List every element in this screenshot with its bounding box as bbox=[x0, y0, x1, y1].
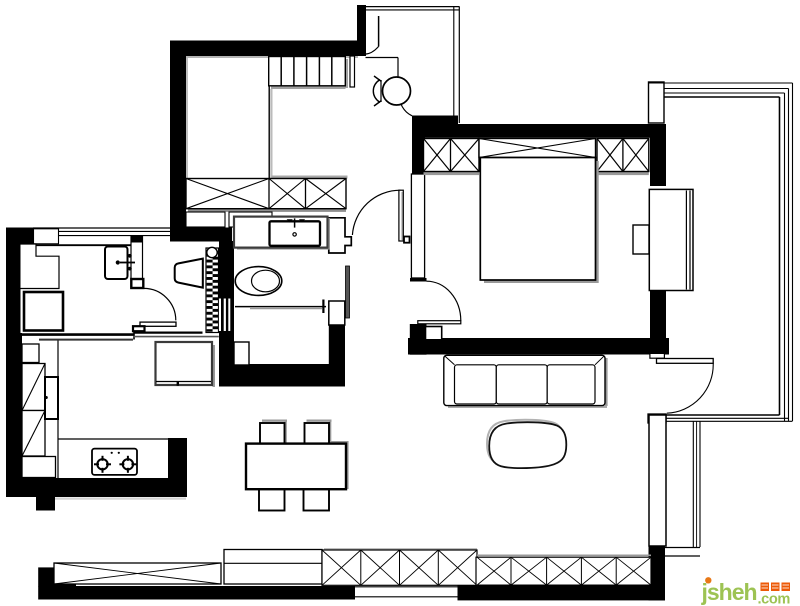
svg-text:.com: .com bbox=[758, 592, 791, 606]
svg-text:jsheh: jsheh bbox=[701, 579, 757, 605]
